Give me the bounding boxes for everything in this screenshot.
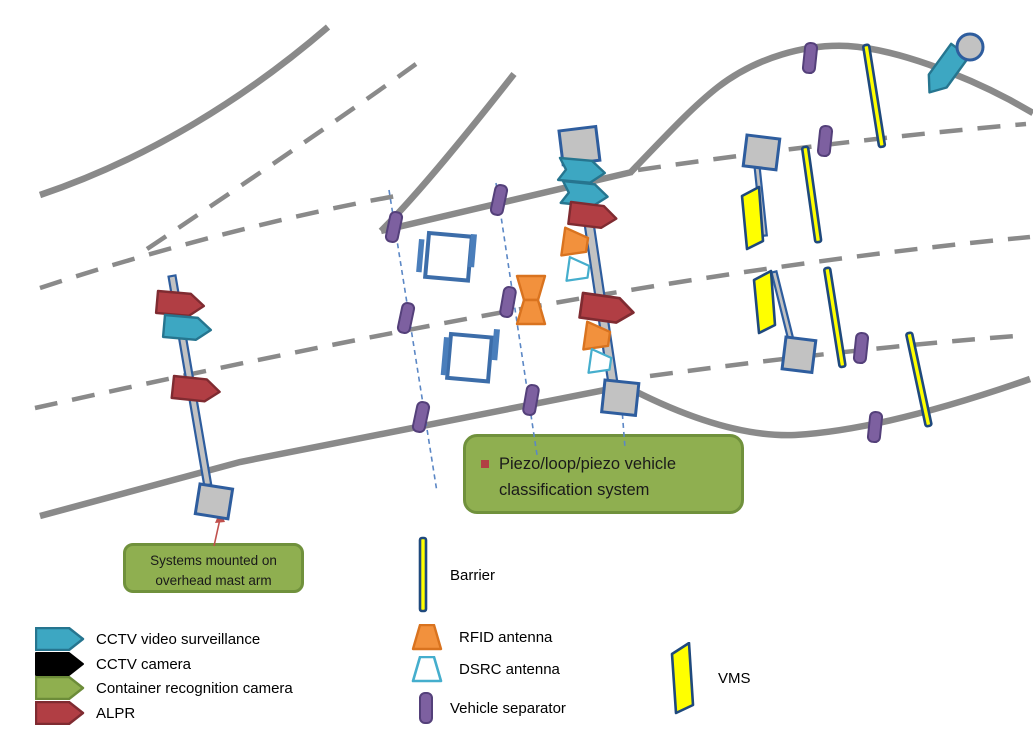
mast-base	[195, 484, 232, 519]
legend-label: CCTV video surveillance	[96, 631, 260, 648]
vehicle-separator	[802, 42, 817, 73]
legend-label: Container recognition camera	[96, 680, 293, 697]
barrier	[906, 332, 932, 426]
bullet-square-icon	[481, 460, 489, 468]
roadside-camera-gate	[921, 34, 983, 99]
legend-label: Barrier	[450, 567, 495, 584]
vms-base	[782, 337, 816, 372]
alpr-arrow	[172, 376, 221, 403]
barrier	[863, 45, 885, 148]
rfid-antenna	[561, 228, 589, 259]
callout-piezo-classification: Piezo/loop/piezo vehicle classification …	[463, 434, 744, 514]
camera-gate-arm	[921, 44, 969, 99]
leader-line-left	[389, 190, 437, 492]
lane-marking-right-upper	[638, 124, 1026, 170]
legend-label: ALPR	[96, 705, 135, 722]
alpr-arrow	[568, 202, 617, 230]
cctv-camera-icon	[35, 652, 85, 676]
rfid-antenna	[517, 276, 545, 300]
legend-label: CCTV camera	[96, 656, 191, 673]
piezo-sensor	[416, 239, 424, 272]
vehicle-separator	[817, 125, 832, 156]
vehicle-separator	[490, 184, 508, 216]
legend-item-cctv-video: CCTV video surveillance	[35, 627, 260, 651]
left-overhead-mast	[156, 275, 233, 518]
lane-marking-right-lower	[650, 336, 1016, 376]
legend-item-barrier: Barrier	[416, 536, 495, 614]
camera-gate-head	[957, 34, 983, 60]
leader-line-center	[496, 183, 537, 455]
vehicle-separators	[385, 42, 883, 442]
road-edge-main-top	[381, 172, 632, 231]
center-gantry	[558, 126, 639, 415]
road-edge-topleft-ramp	[40, 27, 328, 195]
mast-annotation-arrow	[214, 519, 220, 546]
gantry-pole	[582, 202, 618, 383]
barrier-icon	[416, 536, 430, 614]
cctv-video-arrow	[163, 315, 212, 341]
cctv-video-arrow	[561, 181, 609, 208]
lane-marking-left-upper	[40, 196, 396, 288]
rfid-antenna	[583, 322, 611, 353]
gantry-base	[602, 380, 639, 415]
callout-mast-mounted: Systems mounted on overhead mast arm	[123, 543, 304, 593]
barrier	[802, 147, 821, 243]
road-edge-north-curve	[630, 46, 1033, 173]
inductive-loop	[425, 233, 472, 281]
cctv-video-surveillance-icon	[35, 627, 85, 651]
callout-mast-text: Systems mounted on overhead mast arm	[150, 553, 277, 588]
legend-item-dsrc: DSRC antenna	[411, 656, 560, 683]
legend-label: DSRC antenna	[459, 661, 560, 678]
legend-item-cctv-camera: CCTV camera	[35, 652, 191, 676]
callout-piezo-text: Piezo/loop/piezo vehicle classification …	[499, 452, 719, 503]
legend-item-separator: Vehicle separator	[417, 691, 566, 726]
cctv-video-arrow	[558, 158, 606, 184]
piezo-sensor	[468, 234, 477, 267]
legend-label: Vehicle separator	[450, 700, 566, 717]
alpr-arrow	[156, 291, 205, 317]
gantry-connector	[577, 159, 586, 170]
vehicle-separator	[853, 332, 868, 363]
rfid-antenna	[517, 300, 545, 324]
inductive-loop	[447, 334, 492, 381]
lane-marking-topleft-ramp	[147, 64, 416, 249]
legend-item-rfid: RFID antenna	[411, 624, 552, 651]
dsrc-antenna	[566, 257, 590, 283]
dsrc-antenna-icon	[411, 656, 443, 683]
dsrc-antenna	[588, 349, 612, 375]
mast-pole	[169, 275, 212, 485]
gantry-connector	[583, 179, 592, 188]
rfid-bowtie	[499, 276, 545, 324]
container-recognition-camera-icon	[35, 676, 85, 700]
vms-panel	[742, 187, 763, 249]
vms-installations	[742, 135, 816, 372]
vehicle-separator	[412, 401, 430, 433]
alpr-icon	[35, 701, 85, 725]
legend-label: RFID antenna	[459, 629, 552, 646]
vehicle-classification-sensors	[416, 233, 500, 381]
vehicle-separator	[397, 302, 415, 334]
legend-item-alpr: ALPR	[35, 701, 135, 725]
lane-marking-middle	[35, 237, 1030, 408]
vms-pole	[772, 271, 794, 342]
vms-panel	[754, 271, 775, 333]
gantry-top-cabinet	[559, 126, 600, 164]
barrier	[824, 268, 846, 368]
its-road-equipment-diagram: Piezo/loop/piezo vehicle classification …	[0, 0, 1033, 735]
barriers	[802, 45, 932, 427]
vehicle-separator	[499, 286, 516, 318]
road-edge-onramp	[381, 74, 514, 231]
vehicle-separator	[867, 411, 882, 442]
legend-label: VMS	[718, 670, 751, 687]
legend-item-container-camera: Container recognition camera	[35, 676, 293, 700]
vms-icon	[668, 642, 696, 715]
mast-annotation-arrowhead-icon	[215, 511, 225, 523]
piezo-sensor	[441, 337, 450, 375]
rfid-antenna-icon	[411, 624, 443, 651]
legend-item-vms: VMS	[668, 642, 751, 715]
vms-pole	[755, 166, 767, 236]
piezo-sensor	[491, 329, 500, 360]
vehicle-separator	[522, 384, 539, 416]
vehicle-separator	[385, 211, 403, 243]
vms-base	[743, 135, 780, 170]
vehicle-separator-icon	[417, 691, 435, 726]
alpr-arrow	[580, 293, 636, 325]
